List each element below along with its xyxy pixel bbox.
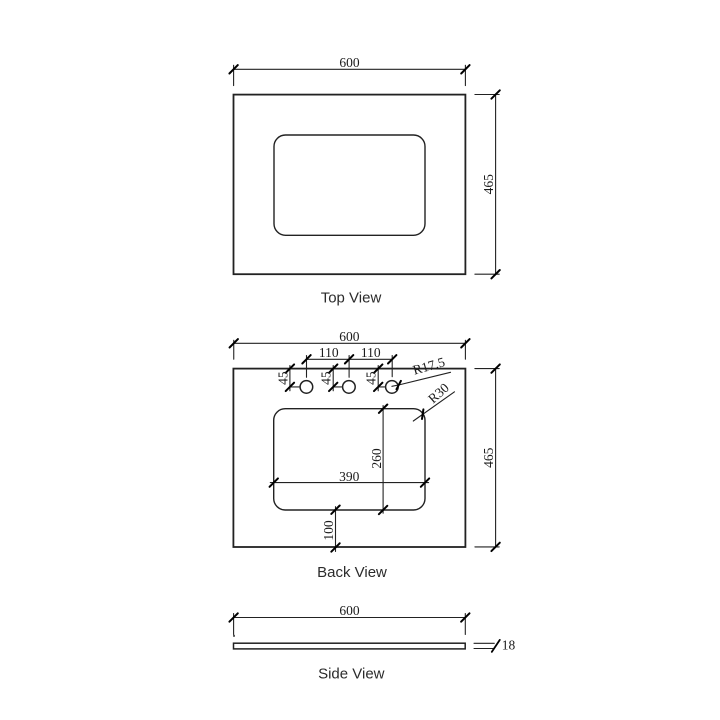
svg-text:110: 110 (319, 345, 339, 360)
svg-text:465: 465 (481, 174, 496, 195)
svg-text:Back View: Back View (317, 564, 387, 581)
svg-text:260: 260 (369, 448, 384, 469)
svg-text:18: 18 (502, 637, 516, 652)
svg-text:465: 465 (481, 447, 496, 468)
svg-text:45: 45 (364, 371, 379, 385)
svg-text:600: 600 (339, 55, 360, 70)
svg-text:390: 390 (339, 469, 360, 484)
svg-text:Top View: Top View (321, 289, 382, 306)
svg-text:45: 45 (275, 371, 290, 385)
svg-text:100: 100 (321, 520, 336, 541)
svg-text:Side View: Side View (318, 665, 385, 682)
svg-text:110: 110 (361, 345, 381, 360)
svg-text:R30: R30 (425, 380, 452, 406)
svg-text:600: 600 (339, 603, 360, 618)
svg-text:45: 45 (319, 371, 334, 385)
svg-text:600: 600 (339, 329, 360, 344)
